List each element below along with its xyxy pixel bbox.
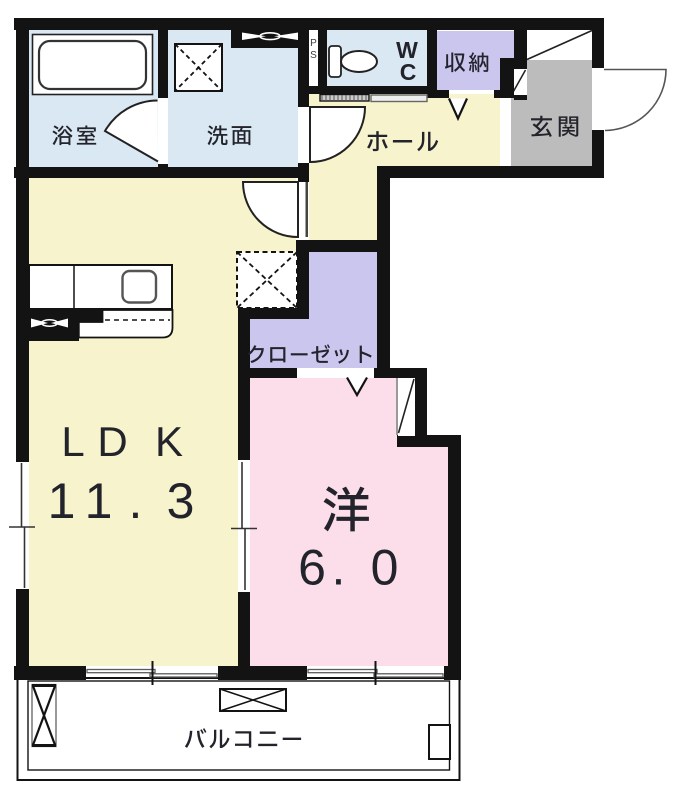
svg-text:1: 1 bbox=[48, 473, 76, 529]
svg-text:6: 6 bbox=[298, 540, 326, 596]
svg-text:K: K bbox=[155, 418, 183, 465]
svg-text:1: 1 bbox=[85, 473, 113, 529]
svg-text:.: . bbox=[129, 473, 143, 529]
svg-text:C: C bbox=[400, 59, 417, 85]
svg-text:D: D bbox=[97, 418, 127, 465]
svg-text:L: L bbox=[61, 418, 84, 465]
svg-text:.: . bbox=[332, 540, 346, 596]
svg-text:S: S bbox=[310, 50, 317, 61]
svg-text:0: 0 bbox=[371, 540, 399, 596]
svg-text:3: 3 bbox=[167, 473, 195, 529]
svg-text:P: P bbox=[310, 38, 317, 49]
